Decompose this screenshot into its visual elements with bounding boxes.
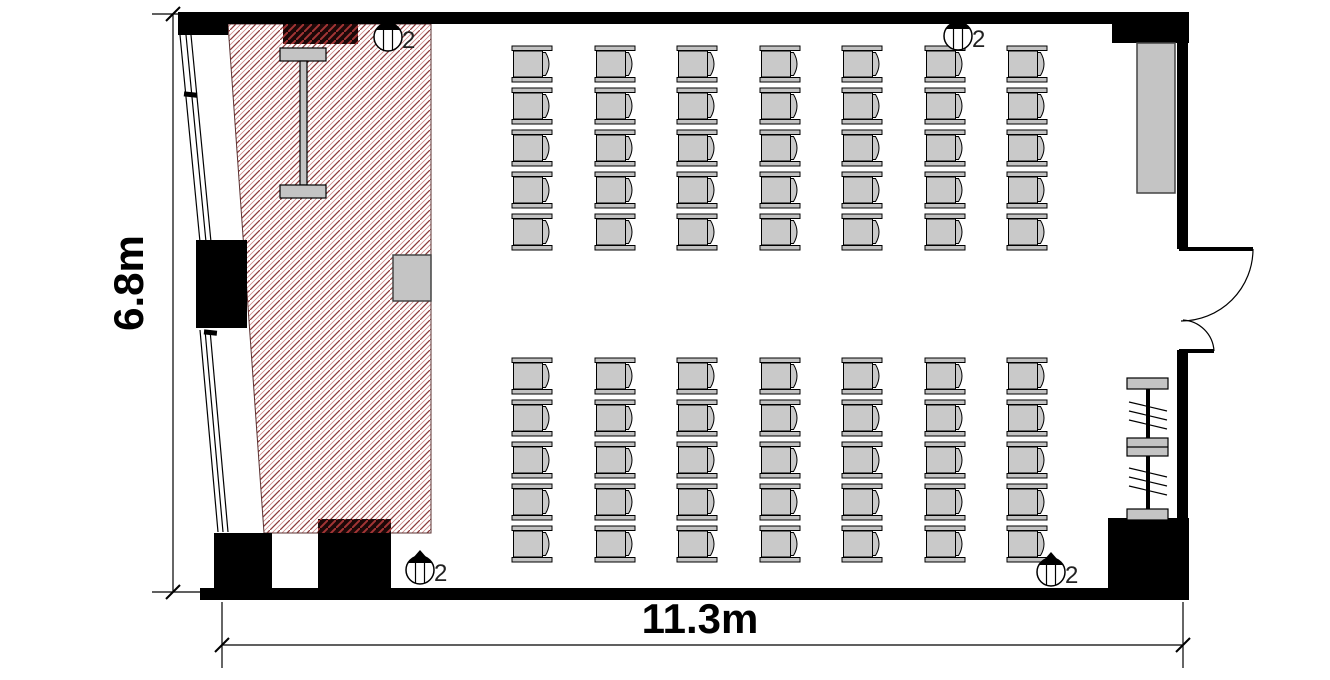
chair-top-bar bbox=[925, 130, 965, 135]
chair-backrest bbox=[626, 407, 633, 430]
chair-bottom-bar bbox=[1007, 162, 1047, 167]
chair-seat bbox=[1009, 489, 1038, 515]
chair-seat bbox=[679, 489, 708, 515]
chair-backrest bbox=[873, 491, 880, 514]
chair-backrest bbox=[543, 137, 550, 160]
chair-backrest bbox=[1038, 407, 1045, 430]
chair-icon bbox=[760, 88, 800, 124]
door-arc-small bbox=[1183, 320, 1214, 351]
chair-top-bar bbox=[595, 172, 635, 177]
chair-icon bbox=[677, 130, 717, 166]
chair-seat bbox=[1009, 177, 1038, 203]
chair-backrest bbox=[956, 53, 963, 76]
chair-backrest bbox=[873, 407, 880, 430]
chair-top-bar bbox=[1007, 484, 1047, 489]
chair-seat bbox=[762, 363, 791, 389]
chair-backrest bbox=[626, 491, 633, 514]
chair-backrest bbox=[791, 179, 798, 202]
chair-top-bar bbox=[760, 172, 800, 177]
chair-backrest bbox=[1038, 179, 1045, 202]
chair-seat bbox=[1009, 531, 1038, 557]
chair-backrest bbox=[791, 491, 798, 514]
chair-backrest bbox=[626, 221, 633, 244]
chair-bottom-bar bbox=[760, 162, 800, 167]
chair-seat bbox=[1009, 219, 1038, 245]
chair-top-bar bbox=[512, 214, 552, 219]
chair-top-bar bbox=[925, 88, 965, 93]
chair-icon bbox=[595, 172, 635, 208]
chair-top-bar bbox=[595, 88, 635, 93]
chair-seat bbox=[597, 531, 626, 557]
chair-icon bbox=[925, 442, 965, 478]
chair-bottom-bar bbox=[677, 516, 717, 521]
chair-bottom-bar bbox=[760, 120, 800, 125]
chair-icon bbox=[595, 526, 635, 562]
chair-backrest bbox=[873, 53, 880, 76]
chair-seat bbox=[927, 93, 956, 119]
chair-bottom-bar bbox=[925, 390, 965, 395]
outlet-count-label: 2 bbox=[972, 26, 985, 53]
chair-bottom-bar bbox=[512, 558, 552, 563]
chair-icon bbox=[842, 484, 882, 520]
chair-icon bbox=[842, 130, 882, 166]
chair-top-bar bbox=[925, 400, 965, 405]
chair-bottom-bar bbox=[512, 474, 552, 479]
chair-bottom-bar bbox=[512, 246, 552, 251]
coat-rack-bar-top bbox=[1127, 378, 1168, 389]
chair-backrest bbox=[708, 365, 715, 388]
chair-icon bbox=[512, 172, 552, 208]
chair-icon bbox=[512, 400, 552, 436]
wall-screen bbox=[1137, 43, 1175, 193]
chair-top-bar bbox=[1007, 400, 1047, 405]
chair-backrest bbox=[956, 533, 963, 556]
chair-icon bbox=[595, 46, 635, 82]
chair-top-bar bbox=[842, 172, 882, 177]
chair-top-bar bbox=[677, 88, 717, 93]
chair-bottom-bar bbox=[1007, 120, 1047, 125]
chair-seat bbox=[679, 51, 708, 77]
chair-top-bar bbox=[760, 358, 800, 363]
chair-icon bbox=[760, 46, 800, 82]
chair-seat bbox=[597, 135, 626, 161]
chair-icon bbox=[1007, 442, 1047, 478]
chair-icon bbox=[1007, 400, 1047, 436]
chair-bottom-bar bbox=[925, 432, 965, 437]
chair-top-bar bbox=[677, 358, 717, 363]
chair-bottom-bar bbox=[760, 432, 800, 437]
chair-icon bbox=[842, 358, 882, 394]
chair-icon bbox=[677, 88, 717, 124]
chair-seat bbox=[514, 405, 543, 431]
chair-backrest bbox=[791, 53, 798, 76]
chair-bottom-bar bbox=[595, 432, 635, 437]
chair-bottom-bar bbox=[1007, 474, 1047, 479]
chair-seat bbox=[597, 51, 626, 77]
chair-bottom-bar bbox=[760, 78, 800, 83]
outlet-count-label: 2 bbox=[402, 27, 415, 54]
chair-backrest bbox=[543, 491, 550, 514]
chair-backrest bbox=[626, 53, 633, 76]
chair-icon bbox=[760, 172, 800, 208]
chair-seat bbox=[927, 51, 956, 77]
chair-icon bbox=[1007, 214, 1047, 250]
chair-icon bbox=[595, 400, 635, 436]
chair-bottom-bar bbox=[842, 516, 882, 521]
chair-top-bar bbox=[760, 400, 800, 405]
chair-bottom-bar bbox=[595, 78, 635, 83]
chair-top-bar bbox=[677, 400, 717, 405]
chair-backrest bbox=[791, 137, 798, 160]
chair-backrest bbox=[873, 533, 880, 556]
height-dimension-label: 6.8m bbox=[105, 235, 152, 331]
chair-top-bar bbox=[595, 358, 635, 363]
window-line bbox=[180, 35, 200, 242]
chair-icon bbox=[842, 88, 882, 124]
chair-top-bar bbox=[925, 484, 965, 489]
chair-top-bar bbox=[512, 484, 552, 489]
chair-backrest bbox=[873, 365, 880, 388]
chair-icon bbox=[760, 358, 800, 394]
chair-icon bbox=[842, 526, 882, 562]
chair-bottom-bar bbox=[595, 204, 635, 209]
chair-backrest bbox=[956, 407, 963, 430]
chair-backrest bbox=[543, 221, 550, 244]
chair-backrest bbox=[873, 137, 880, 160]
window-line bbox=[200, 330, 218, 532]
floor-plan-canvas: 2222 6.8m 11.3m bbox=[0, 0, 1330, 680]
chair-seat bbox=[844, 447, 873, 473]
outlets-layer: 2222 bbox=[374, 16, 1078, 589]
chair-bottom-bar bbox=[595, 162, 635, 167]
chair-seat bbox=[927, 489, 956, 515]
chair-bottom-bar bbox=[677, 432, 717, 437]
chair-backrest bbox=[956, 137, 963, 160]
chair-icon bbox=[1007, 46, 1047, 82]
chair-backrest bbox=[791, 365, 798, 388]
chair-seat bbox=[762, 489, 791, 515]
chair-bottom-bar bbox=[1007, 390, 1047, 395]
chair-top-bar bbox=[842, 130, 882, 135]
chair-top-bar bbox=[842, 46, 882, 51]
chair-bottom-bar bbox=[595, 120, 635, 125]
chair-backrest bbox=[708, 137, 715, 160]
ibeam-top-flange bbox=[280, 48, 326, 61]
chair-bottom-bar bbox=[925, 516, 965, 521]
window-line bbox=[205, 330, 223, 532]
chair-seat bbox=[1009, 135, 1038, 161]
chair-seat bbox=[762, 531, 791, 557]
chair-top-bar bbox=[677, 214, 717, 219]
chair-seat bbox=[762, 135, 791, 161]
chair-backrest bbox=[791, 533, 798, 556]
chair-backrest bbox=[873, 449, 880, 472]
podium bbox=[393, 255, 431, 301]
dark-block-top-hatch bbox=[283, 22, 358, 44]
chair-bottom-bar bbox=[677, 390, 717, 395]
chair-bottom-bar bbox=[1007, 246, 1047, 251]
chair-icon bbox=[760, 400, 800, 436]
chair-top-bar bbox=[595, 214, 635, 219]
chair-icon bbox=[760, 214, 800, 250]
chair-backrest bbox=[956, 95, 963, 118]
chair-backrest bbox=[1038, 137, 1045, 160]
chair-seat bbox=[514, 363, 543, 389]
chair-top-bar bbox=[677, 172, 717, 177]
chair-backrest bbox=[543, 53, 550, 76]
chair-bottom-bar bbox=[842, 246, 882, 251]
chair-top-bar bbox=[512, 130, 552, 135]
chair-seat bbox=[1009, 363, 1038, 389]
chair-icon bbox=[925, 400, 965, 436]
chair-bottom-bar bbox=[925, 78, 965, 83]
chair-icon bbox=[677, 526, 717, 562]
chair-backrest bbox=[543, 407, 550, 430]
chair-seat bbox=[844, 489, 873, 515]
chair-icon bbox=[1007, 484, 1047, 520]
chair-backrest bbox=[543, 449, 550, 472]
chair-seat bbox=[514, 93, 543, 119]
chair-seat bbox=[597, 405, 626, 431]
chair-icon bbox=[925, 358, 965, 394]
chair-icon bbox=[925, 484, 965, 520]
dark-block-bottom-hatch bbox=[318, 519, 391, 535]
chair-seat bbox=[762, 177, 791, 203]
chair-seat bbox=[927, 363, 956, 389]
chair-top-bar bbox=[760, 130, 800, 135]
chair-top-bar bbox=[677, 46, 717, 51]
column-bottom-left-a bbox=[214, 533, 272, 592]
chair-icon bbox=[1007, 526, 1047, 562]
chair-top-bar bbox=[760, 484, 800, 489]
window-line bbox=[191, 35, 211, 242]
chair-seat bbox=[679, 177, 708, 203]
chair-backrest bbox=[956, 221, 963, 244]
chair-seat bbox=[1009, 405, 1038, 431]
chair-icon bbox=[842, 46, 882, 82]
chair-backrest bbox=[873, 95, 880, 118]
chair-bottom-bar bbox=[842, 390, 882, 395]
chair-seat bbox=[514, 219, 543, 245]
chair-backrest bbox=[1038, 221, 1045, 244]
chair-seat bbox=[927, 177, 956, 203]
chair-bottom-bar bbox=[677, 246, 717, 251]
chair-bottom-bar bbox=[925, 120, 965, 125]
chair-seat bbox=[762, 93, 791, 119]
chair-icon bbox=[677, 358, 717, 394]
chair-backrest bbox=[708, 533, 715, 556]
chair-bottom-bar bbox=[842, 558, 882, 563]
chair-seat bbox=[514, 51, 543, 77]
chair-backrest bbox=[1038, 491, 1045, 514]
chair-icon bbox=[677, 214, 717, 250]
chair-bottom-bar bbox=[842, 474, 882, 479]
chair-top-bar bbox=[925, 172, 965, 177]
chair-backrest bbox=[626, 365, 633, 388]
chair-top-bar bbox=[760, 88, 800, 93]
chair-icon bbox=[595, 484, 635, 520]
chair-seat bbox=[597, 93, 626, 119]
chair-bottom-bar bbox=[760, 390, 800, 395]
chair-top-bar bbox=[595, 46, 635, 51]
chair-top-bar bbox=[842, 484, 882, 489]
chair-seat bbox=[514, 135, 543, 161]
coat-rack-bar-bottom bbox=[1127, 509, 1168, 520]
chair-top-bar bbox=[512, 400, 552, 405]
chair-icon bbox=[512, 88, 552, 124]
chair-bottom-bar bbox=[595, 516, 635, 521]
chair-seat bbox=[597, 177, 626, 203]
chair-icon bbox=[677, 400, 717, 436]
chair-bottom-bar bbox=[512, 78, 552, 83]
chair-bottom-bar bbox=[512, 162, 552, 167]
chair-icon bbox=[760, 526, 800, 562]
chair-seat bbox=[679, 405, 708, 431]
chair-seat bbox=[679, 531, 708, 557]
chair-seat bbox=[514, 489, 543, 515]
chair-bottom-bar bbox=[677, 558, 717, 563]
chair-backrest bbox=[1038, 449, 1045, 472]
chair-bottom-bar bbox=[925, 474, 965, 479]
chair-bottom-bar bbox=[760, 474, 800, 479]
chair-top-bar bbox=[760, 442, 800, 447]
chair-top-bar bbox=[595, 526, 635, 531]
chair-seat bbox=[514, 447, 543, 473]
chair-icon bbox=[842, 400, 882, 436]
chair-seat bbox=[844, 51, 873, 77]
chair-top-bar bbox=[1007, 172, 1047, 177]
chair-backrest bbox=[708, 53, 715, 76]
chair-seat bbox=[514, 177, 543, 203]
chair-top-bar bbox=[595, 400, 635, 405]
chair-seat bbox=[597, 447, 626, 473]
chair-backrest bbox=[626, 533, 633, 556]
chair-top-bar bbox=[842, 400, 882, 405]
chair-backrest bbox=[708, 221, 715, 244]
chair-icon bbox=[842, 442, 882, 478]
chair-top-bar bbox=[842, 214, 882, 219]
chair-backrest bbox=[626, 137, 633, 160]
chair-bottom-bar bbox=[512, 120, 552, 125]
chair-seat bbox=[597, 363, 626, 389]
chair-icon bbox=[760, 442, 800, 478]
chair-top-bar bbox=[512, 88, 552, 93]
chair-bottom-bar bbox=[842, 432, 882, 437]
dimension-width: 11.3m bbox=[215, 595, 1190, 668]
chair-icon bbox=[595, 88, 635, 124]
chair-seat bbox=[514, 531, 543, 557]
chair-seat bbox=[844, 405, 873, 431]
chair-backrest bbox=[626, 449, 633, 472]
chair-bottom-bar bbox=[842, 162, 882, 167]
chair-seat bbox=[927, 531, 956, 557]
outlet-count-label: 2 bbox=[434, 560, 447, 587]
chair-top-bar bbox=[760, 214, 800, 219]
chair-icon bbox=[512, 484, 552, 520]
wall-corner-top-left bbox=[178, 12, 228, 35]
chair-backrest bbox=[956, 365, 963, 388]
chair-icon bbox=[595, 442, 635, 478]
chair-bottom-bar bbox=[1007, 516, 1047, 521]
chair-backrest bbox=[543, 95, 550, 118]
chair-backrest bbox=[708, 179, 715, 202]
chair-backrest bbox=[791, 449, 798, 472]
wall-top bbox=[178, 12, 1189, 24]
chair-backrest bbox=[873, 179, 880, 202]
chair-seat bbox=[927, 447, 956, 473]
chair-seat bbox=[597, 489, 626, 515]
outlet-icon: 2 bbox=[406, 550, 447, 587]
chair-top-bar bbox=[595, 484, 635, 489]
chair-top-bar bbox=[677, 130, 717, 135]
chair-icon bbox=[1007, 172, 1047, 208]
outlet-count-label: 2 bbox=[1065, 562, 1078, 589]
rear-block bbox=[512, 358, 1047, 562]
chair-bottom-bar bbox=[677, 474, 717, 479]
chair-top-bar bbox=[512, 172, 552, 177]
chair-bottom-bar bbox=[842, 204, 882, 209]
chair-backrest bbox=[791, 407, 798, 430]
chair-bottom-bar bbox=[512, 432, 552, 437]
chair-bottom-bar bbox=[760, 558, 800, 563]
chair-seat bbox=[844, 531, 873, 557]
chair-backrest bbox=[873, 221, 880, 244]
chair-bottom-bar bbox=[925, 204, 965, 209]
chair-backrest bbox=[543, 179, 550, 202]
chair-icon bbox=[925, 214, 965, 250]
chair-bottom-bar bbox=[512, 516, 552, 521]
chair-bottom-bar bbox=[1007, 78, 1047, 83]
chair-icon bbox=[677, 46, 717, 82]
chair-icon bbox=[925, 526, 965, 562]
chair-top-bar bbox=[925, 358, 965, 363]
column-bottom-left-b bbox=[318, 533, 391, 592]
chair-top-bar bbox=[677, 442, 717, 447]
chair-bottom-bar bbox=[925, 162, 965, 167]
chair-top-bar bbox=[512, 526, 552, 531]
chair-icon bbox=[677, 172, 717, 208]
chair-top-bar bbox=[677, 484, 717, 489]
chair-seat bbox=[679, 447, 708, 473]
chair-bottom-bar bbox=[595, 558, 635, 563]
wall-right-lower bbox=[1177, 350, 1188, 520]
chair-bottom-bar bbox=[760, 204, 800, 209]
chair-icon bbox=[925, 88, 965, 124]
chair-backrest bbox=[956, 491, 963, 514]
chair-bottom-bar bbox=[595, 246, 635, 251]
chair-icon bbox=[677, 442, 717, 478]
chair-icon bbox=[760, 484, 800, 520]
chair-seat bbox=[679, 135, 708, 161]
chair-icon bbox=[1007, 130, 1047, 166]
chair-icon bbox=[1007, 358, 1047, 394]
chair-backrest bbox=[1038, 533, 1045, 556]
coat-rack-icon bbox=[1127, 378, 1168, 521]
chair-top-bar bbox=[842, 88, 882, 93]
chair-bottom-bar bbox=[677, 78, 717, 83]
column-left-mid bbox=[196, 240, 247, 328]
chair-top-bar bbox=[760, 46, 800, 51]
chair-icon bbox=[925, 130, 965, 166]
chair-seat bbox=[1009, 447, 1038, 473]
chair-bottom-bar bbox=[512, 390, 552, 395]
width-dimension-label: 11.3m bbox=[642, 595, 759, 642]
chair-icon bbox=[677, 484, 717, 520]
wall-corner-bottom-right bbox=[1108, 518, 1189, 600]
chair-top-bar bbox=[512, 46, 552, 51]
chair-seat bbox=[1009, 93, 1038, 119]
chair-bottom-bar bbox=[842, 120, 882, 125]
